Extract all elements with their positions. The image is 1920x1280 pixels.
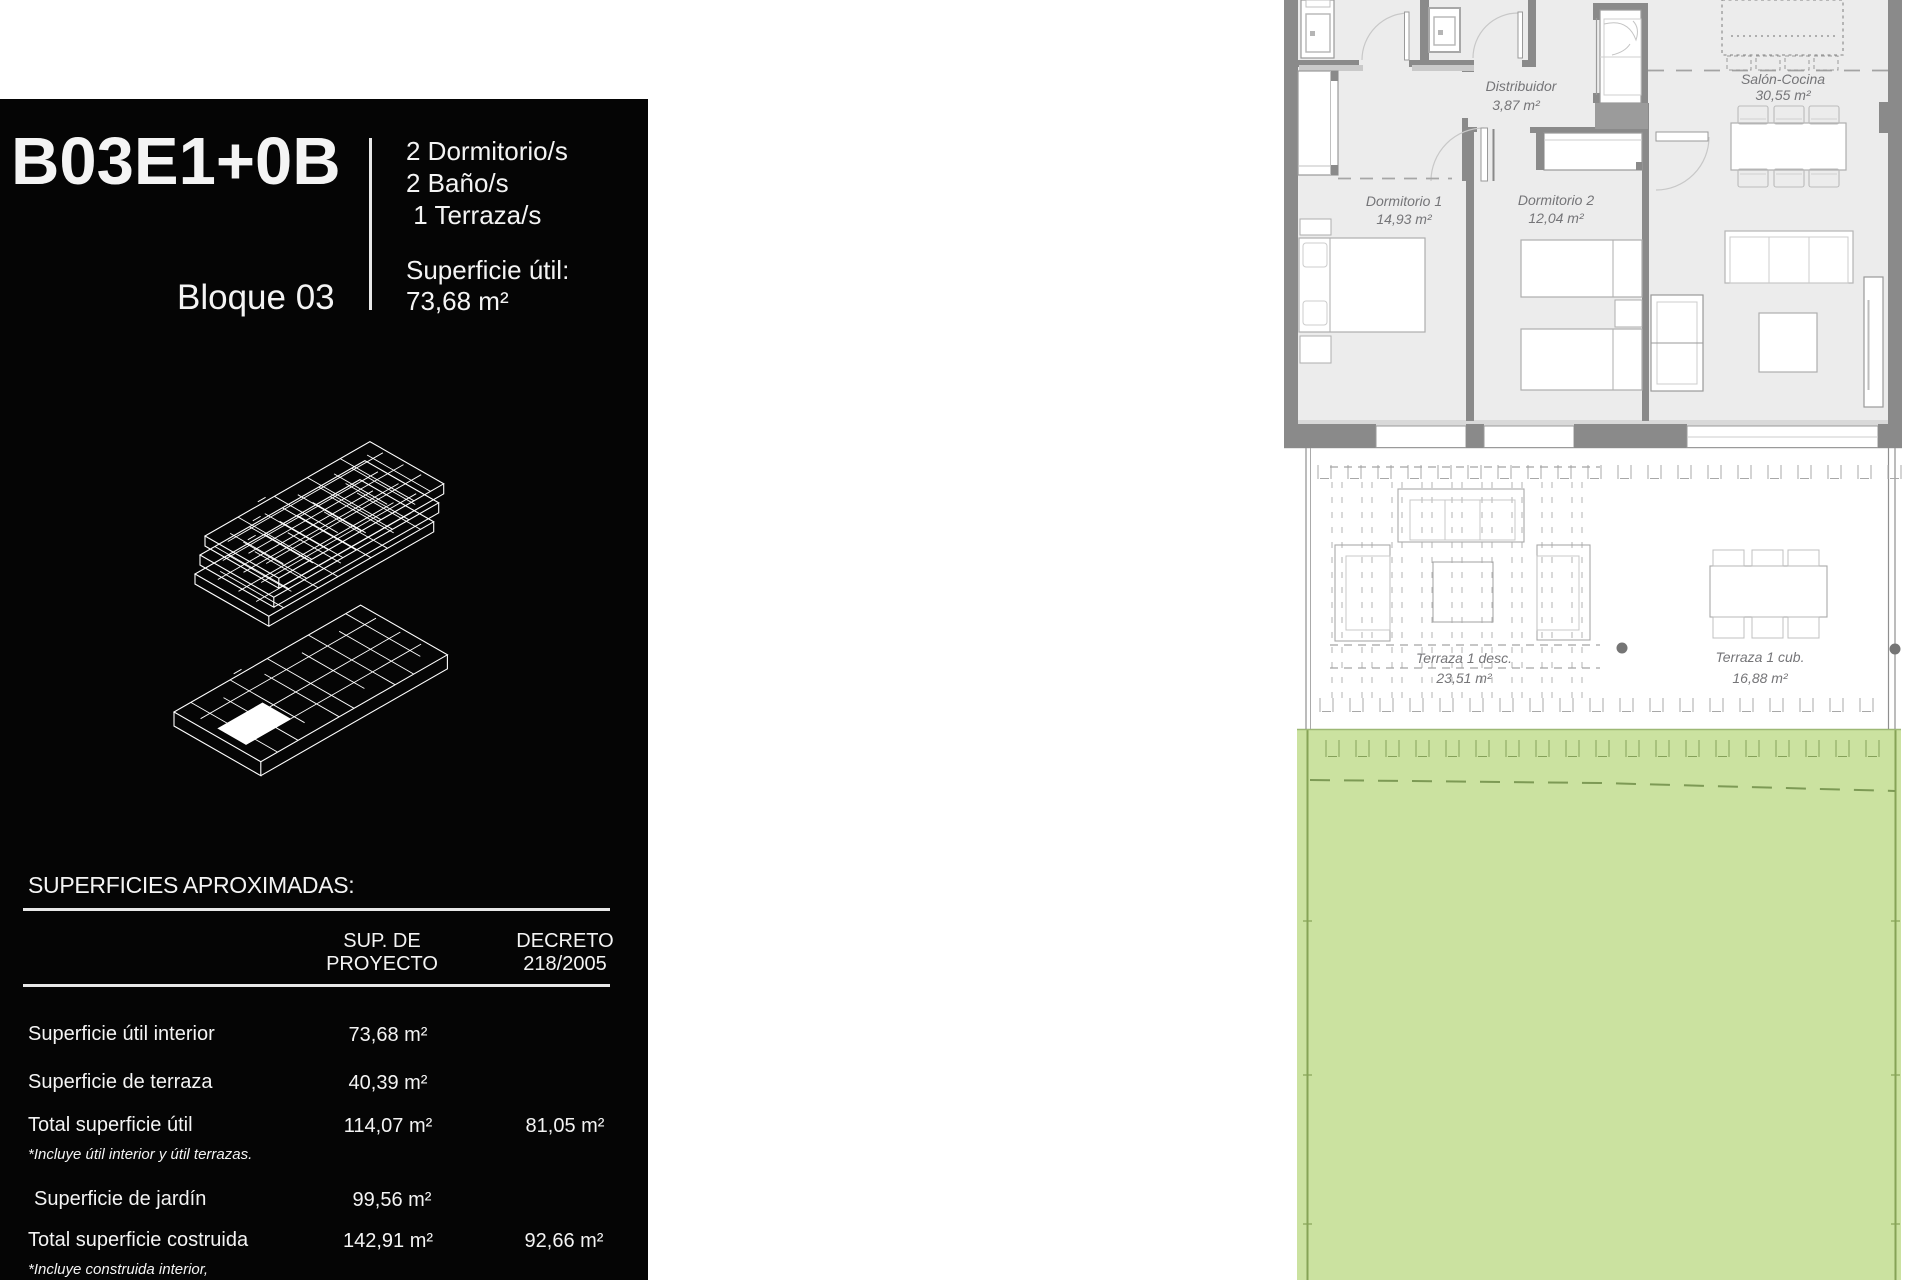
svg-text:Dormitorio 1: Dormitorio 1 bbox=[1366, 193, 1442, 209]
svg-text:Distribuidor: Distribuidor bbox=[1486, 78, 1558, 94]
svg-text:Terraza 1 desc.: Terraza 1 desc. bbox=[1416, 650, 1512, 666]
svg-text:Dormitorio 2: Dormitorio 2 bbox=[1518, 192, 1594, 208]
svg-text:30,55 m²: 30,55 m² bbox=[1755, 87, 1812, 103]
svg-text:23,51 m²: 23,51 m² bbox=[1435, 670, 1493, 686]
svg-text:14,93 m²: 14,93 m² bbox=[1376, 211, 1433, 227]
svg-text:3,87 m²: 3,87 m² bbox=[1492, 97, 1541, 113]
svg-text:12,04 m²: 12,04 m² bbox=[1528, 210, 1585, 226]
svg-text:Salón-Cocina: Salón-Cocina bbox=[1741, 71, 1825, 87]
svg-text:16,88 m²: 16,88 m² bbox=[1732, 670, 1789, 686]
svg-text:Terraza 1 cub.: Terraza 1 cub. bbox=[1716, 649, 1805, 665]
